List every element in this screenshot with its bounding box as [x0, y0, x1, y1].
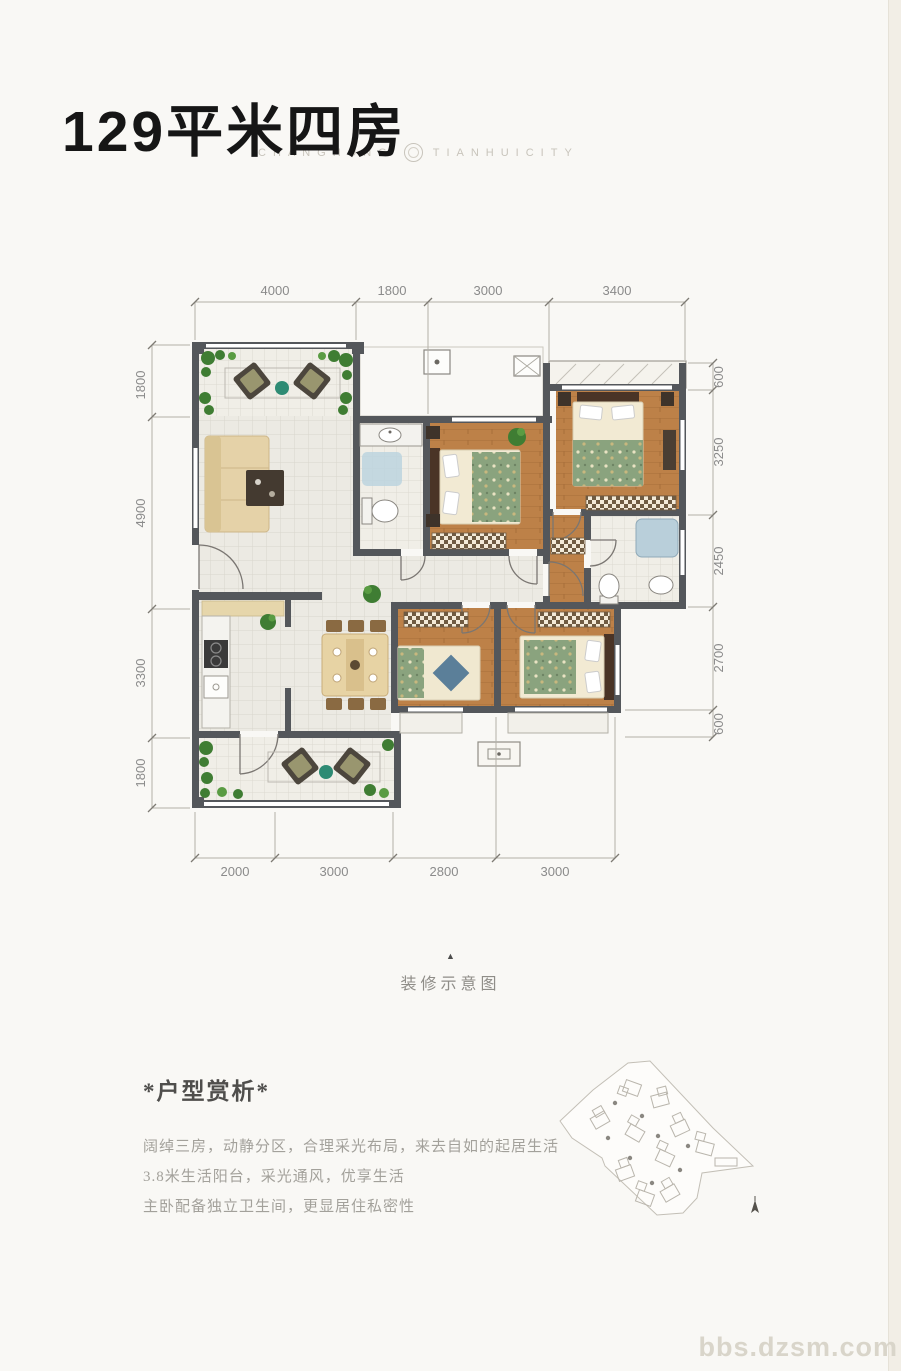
plan-caption: ▲ 装修示意图 — [0, 952, 901, 994]
dim-label: 2800 — [430, 864, 459, 879]
basin — [649, 576, 673, 594]
shower — [362, 452, 402, 486]
page-title: 129平米四房 — [62, 86, 406, 168]
hall-wardrobe — [551, 538, 585, 554]
counter — [202, 616, 230, 728]
watermark: bbs.dzsm.com — [698, 1332, 898, 1363]
coffee-table — [246, 470, 284, 506]
dim-label: 4000 — [261, 283, 290, 298]
caption-arrow-icon: ▲ — [0, 952, 901, 961]
side-table — [319, 765, 333, 779]
dim-label: 2000 — [221, 864, 250, 879]
chair — [348, 698, 364, 710]
dim-label: 3400 — [603, 283, 632, 298]
window-ledges — [400, 713, 608, 766]
dim-label: 3300 — [133, 659, 148, 688]
side-table — [275, 381, 289, 395]
wardrobe — [404, 612, 468, 627]
chair — [370, 698, 386, 710]
master-hall-floor — [549, 515, 584, 602]
chair — [326, 620, 342, 632]
dim-label: 1800 — [378, 283, 407, 298]
dim-label: 2450 — [711, 547, 726, 576]
wardrobe — [538, 612, 610, 627]
site-plan-map — [540, 1058, 790, 1233]
wardrobe — [586, 496, 676, 510]
nightstand — [558, 392, 571, 406]
north-arrow-icon — [751, 1196, 759, 1213]
master-bay-window — [549, 361, 686, 388]
nightstand — [661, 392, 674, 406]
upper-cabinet — [202, 601, 284, 616]
bed-headboard — [577, 392, 639, 402]
bedroom-3 — [398, 612, 480, 700]
caption-text: 装修示意图 — [0, 970, 901, 994]
dim-label: 4900 — [133, 499, 148, 528]
dim-label: 600 — [711, 366, 726, 388]
quilt — [472, 452, 520, 522]
toilet — [362, 498, 372, 524]
dining-area — [322, 620, 388, 710]
cabinet — [663, 430, 676, 470]
chair — [348, 620, 364, 632]
dim-label: 3000 — [320, 864, 349, 879]
dim-label: 1800 — [133, 759, 148, 788]
dim-label: 3000 — [541, 864, 570, 879]
bed-headboard — [604, 634, 614, 700]
chair — [370, 620, 386, 632]
nightstand — [426, 514, 440, 527]
quilt — [573, 440, 643, 486]
sink — [204, 676, 228, 698]
page-right-edge — [888, 0, 901, 1371]
dim-label: 600 — [711, 713, 726, 735]
dim-label: 2700 — [711, 644, 726, 673]
dim-label: 3000 — [474, 283, 503, 298]
wardrobe — [432, 533, 506, 549]
cooktop — [204, 640, 228, 668]
quilt — [524, 640, 576, 694]
shower — [636, 519, 678, 557]
dim-label: 3250 — [711, 438, 726, 467]
floor-plan: 4000 1800 3000 3400 1800 4900 3300 1800 … — [130, 260, 790, 910]
chair — [326, 698, 342, 710]
brand-logo-icon — [404, 143, 423, 162]
nightstand — [426, 426, 440, 439]
brand-right-text: TIANHUICITY — [433, 147, 579, 159]
site-boundary — [560, 1061, 753, 1215]
dim-label: 1800 — [133, 371, 148, 400]
